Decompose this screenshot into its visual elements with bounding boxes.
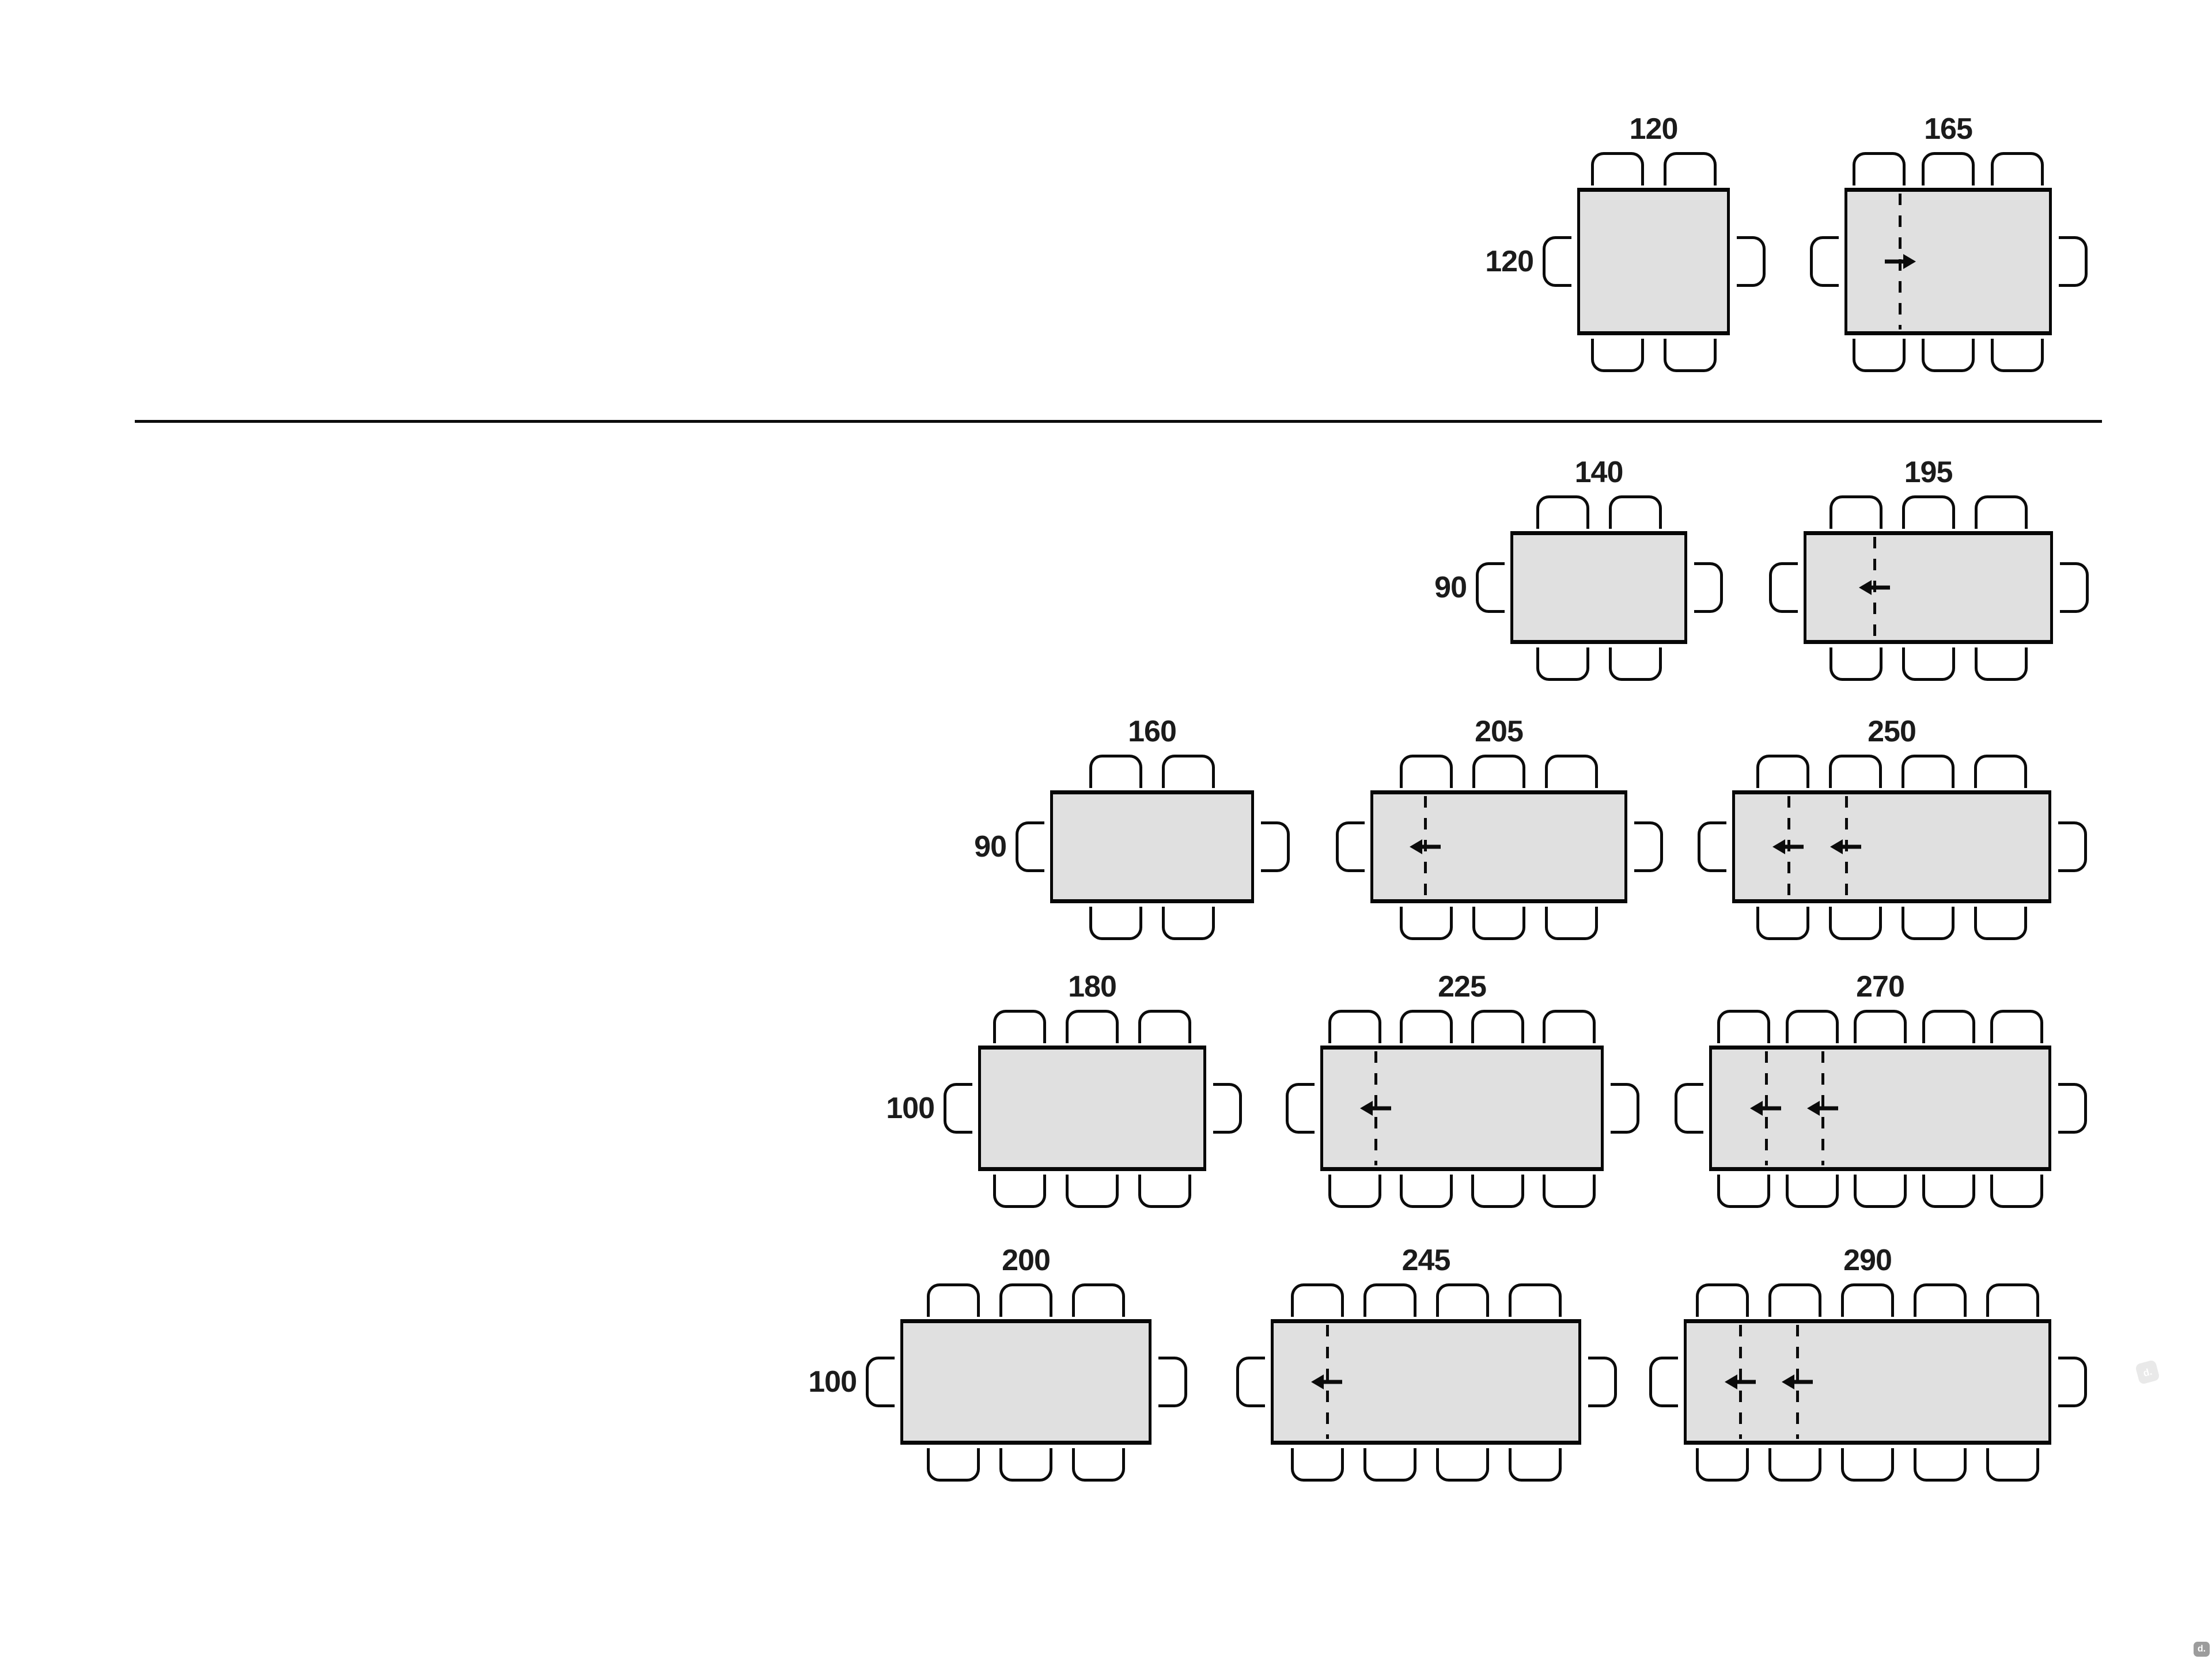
chair-icon: [999, 1283, 1052, 1317]
chair-icon: [1634, 821, 1663, 872]
table-depth-label: 100: [704, 1362, 857, 1402]
chair-icon: [1975, 647, 2028, 681]
chair-icon: [1914, 1448, 1967, 1482]
chair-icon: [1990, 1010, 2043, 1043]
chair-icon: [1543, 1010, 1596, 1043]
table-width-label: 165: [1844, 111, 2052, 147]
extension-arrow-icon: [1806, 1100, 1840, 1117]
watermark-logo-text: d.: [2198, 1645, 2206, 1654]
diagram-canvas: 1201201651409019516090205250180100225270…: [0, 0, 2212, 1659]
extension-arrow-icon: [1749, 1100, 1783, 1117]
table-width-label: 245: [1271, 1242, 1581, 1279]
chair-icon: [1066, 1175, 1119, 1208]
chair-icon: [1543, 236, 1571, 287]
chair-icon: [1400, 1010, 1453, 1043]
table-depth-label: 90: [1315, 568, 1467, 607]
chair-icon: [1986, 1283, 2039, 1317]
chair-icon: [1649, 1357, 1678, 1407]
chair-icon: [1591, 339, 1644, 372]
table-width-label: 225: [1320, 968, 1604, 1005]
chair-icon: [1543, 1175, 1596, 1208]
chair-icon: [1664, 152, 1717, 185]
chair-icon: [1768, 1283, 1821, 1317]
table-width-label: 120: [1577, 111, 1730, 147]
chair-icon: [1472, 907, 1525, 940]
chair-icon: [1698, 821, 1726, 872]
chair-icon: [1472, 755, 1525, 788]
chair-icon: [1509, 1448, 1562, 1482]
chair-icon: [1162, 907, 1215, 940]
chair-icon: [1696, 1283, 1749, 1317]
chair-icon: [1810, 236, 1839, 287]
table-width-label: 180: [978, 968, 1206, 1005]
table-top: [1050, 790, 1254, 903]
chair-icon: [1291, 1448, 1344, 1482]
chair-icon: [1854, 1175, 1907, 1208]
chair-icon: [1922, 1010, 1975, 1043]
chair-icon: [1922, 339, 1975, 372]
chair-icon: [1261, 821, 1290, 872]
table-top: [978, 1046, 1206, 1171]
chair-icon: [1975, 495, 2028, 529]
chair-icon: [2060, 562, 2089, 613]
chair-icon: [1588, 1357, 1617, 1407]
chair-icon: [1717, 1010, 1770, 1043]
chair-icon: [1286, 1083, 1315, 1134]
chair-icon: [1841, 1283, 1894, 1317]
chair-icon: [1853, 152, 1906, 185]
chair-icon: [2059, 236, 2088, 287]
chair-icon: [1545, 755, 1598, 788]
table-width-label: 250: [1732, 713, 2051, 750]
chair-icon: [1829, 907, 1882, 940]
extension-arrow-icon: [1829, 838, 1863, 855]
chair-icon: [1986, 1448, 2039, 1482]
chair-icon: [1536, 647, 1589, 681]
chair-icon: [1089, 755, 1142, 788]
chair-icon: [1162, 755, 1215, 788]
chair-icon: [1400, 907, 1453, 940]
chair-icon: [1471, 1175, 1524, 1208]
watermark-logo-badge: d.: [2194, 1642, 2210, 1657]
chair-icon: [1509, 1283, 1562, 1317]
chair-icon: [999, 1448, 1052, 1482]
chair-icon: [2058, 1357, 2087, 1407]
chair-icon: [2058, 1083, 2087, 1134]
extension-arrow-icon: [1724, 1373, 1758, 1391]
section-divider-line: [135, 420, 2102, 423]
extension-arrow-icon: [1771, 838, 1806, 855]
table-top: [1577, 188, 1730, 335]
chair-icon: [1072, 1283, 1125, 1317]
table-depth-label: 100: [782, 1089, 934, 1128]
chair-icon: [1611, 1083, 1639, 1134]
table-depth-label: 90: [854, 827, 1006, 866]
chair-icon: [1400, 755, 1453, 788]
chair-icon: [1072, 1448, 1125, 1482]
chair-icon: [1609, 647, 1662, 681]
chair-icon: [1436, 1448, 1489, 1482]
chair-icon: [1902, 647, 1955, 681]
chair-icon: [1291, 1283, 1344, 1317]
chair-icon: [1902, 495, 1955, 529]
chair-icon: [1830, 495, 1883, 529]
chair-icon: [1476, 562, 1505, 613]
chair-icon: [1089, 907, 1142, 940]
chair-icon: [927, 1283, 980, 1317]
extension-arrow-icon: [1858, 579, 1892, 596]
chair-icon: [1853, 339, 1906, 372]
table-width-label: 140: [1510, 454, 1687, 491]
chair-icon: [1471, 1010, 1524, 1043]
chair-icon: [1902, 755, 1955, 788]
chair-icon: [1213, 1083, 1242, 1134]
chair-icon: [1768, 1448, 1821, 1482]
chair-icon: [927, 1448, 980, 1482]
chair-icon: [1545, 907, 1598, 940]
chair-icon: [1737, 236, 1766, 287]
chair-icon: [1236, 1357, 1265, 1407]
table-top: [1804, 531, 2053, 644]
table-width-label: 290: [1684, 1242, 2051, 1279]
chair-icon: [1717, 1175, 1770, 1208]
chair-icon: [1138, 1010, 1191, 1043]
table-width-label: 205: [1370, 713, 1627, 750]
chair-icon: [1922, 152, 1975, 185]
chair-icon: [1974, 907, 2027, 940]
chair-icon: [1922, 1175, 1975, 1208]
table-width-label: 200: [900, 1242, 1152, 1279]
chair-icon: [1436, 1283, 1489, 1317]
chair-icon: [993, 1175, 1046, 1208]
chair-icon: [1990, 1175, 2043, 1208]
chair-icon: [1991, 339, 2044, 372]
chair-icon: [1336, 821, 1365, 872]
chair-icon: [1841, 1448, 1894, 1482]
chair-icon: [1696, 1448, 1749, 1482]
chair-icon: [1694, 562, 1723, 613]
chair-icon: [1066, 1010, 1119, 1043]
extension-arrow-icon: [1781, 1373, 1815, 1391]
chair-icon: [1829, 755, 1882, 788]
table-width-label: 270: [1709, 968, 2051, 1005]
chair-icon: [1664, 339, 1717, 372]
extension-arrow-icon: [1359, 1100, 1393, 1117]
extension-arrow-icon: [1310, 1373, 1344, 1391]
table-depth-label: 120: [1381, 242, 1533, 281]
chair-icon: [1591, 152, 1644, 185]
chair-icon: [944, 1083, 972, 1134]
chair-icon: [1138, 1175, 1191, 1208]
chair-icon: [1363, 1283, 1416, 1317]
watermark-logo-badge: d.: [2135, 1359, 2160, 1385]
chair-icon: [1016, 821, 1044, 872]
chair-icon: [993, 1010, 1046, 1043]
chair-icon: [2058, 821, 2087, 872]
chair-icon: [1786, 1175, 1839, 1208]
chair-icon: [1400, 1175, 1453, 1208]
watermark-logo-text: d.: [2142, 1366, 2153, 1378]
chair-icon: [1328, 1175, 1381, 1208]
chair-icon: [1974, 755, 2027, 788]
chair-icon: [1158, 1357, 1187, 1407]
table-top: [1844, 188, 2052, 335]
chair-icon: [1536, 495, 1589, 529]
table-width-label: 195: [1804, 454, 2053, 491]
extension-arrow-icon: [1883, 253, 1917, 270]
chair-icon: [1854, 1010, 1907, 1043]
chair-icon: [1991, 152, 2044, 185]
extension-arrow-icon: [1408, 838, 1443, 855]
chair-icon: [1756, 907, 1809, 940]
table-width-label: 160: [1050, 713, 1254, 750]
chair-icon: [1830, 647, 1883, 681]
chair-icon: [1328, 1010, 1381, 1043]
chair-icon: [1902, 907, 1955, 940]
chair-icon: [1769, 562, 1798, 613]
chair-icon: [866, 1357, 895, 1407]
chair-icon: [1675, 1083, 1703, 1134]
table-top: [1510, 531, 1687, 644]
chair-icon: [1609, 495, 1662, 529]
chair-icon: [1786, 1010, 1839, 1043]
chair-icon: [1756, 755, 1809, 788]
table-top: [900, 1319, 1152, 1445]
chair-icon: [1914, 1283, 1967, 1317]
chair-icon: [1363, 1448, 1416, 1482]
